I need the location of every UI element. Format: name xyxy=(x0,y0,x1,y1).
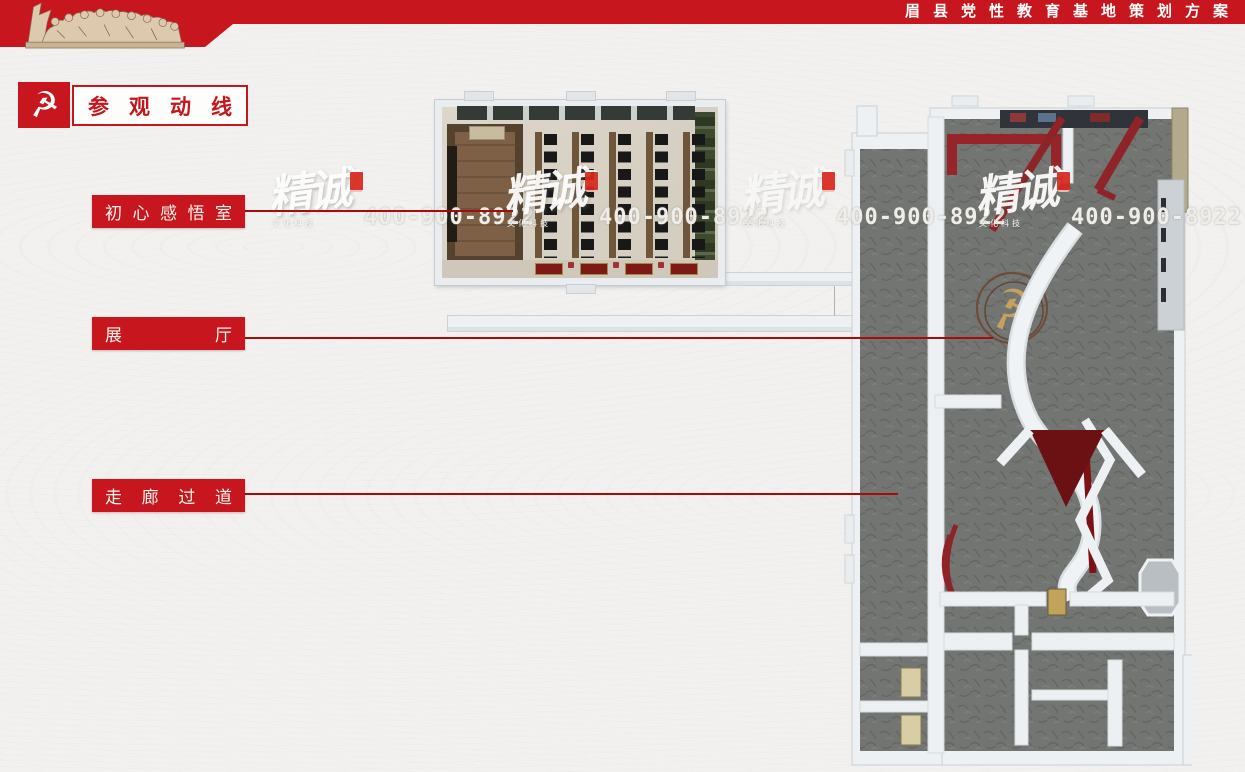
display-item xyxy=(1010,113,1026,122)
classroom-floorplan xyxy=(435,100,725,285)
wing-wall xyxy=(860,701,928,712)
section-title: 参观动线 xyxy=(74,91,246,121)
watermark-seal-icon xyxy=(350,170,363,192)
wall-art xyxy=(658,262,664,268)
wall-stub xyxy=(1015,605,1028,635)
room-wall xyxy=(940,592,1046,606)
projection-screen xyxy=(447,146,457,242)
chair-row xyxy=(692,134,705,258)
room-wall xyxy=(1070,592,1174,606)
gold-exhibit-piece xyxy=(1048,589,1066,615)
leadline-chuxin-room xyxy=(245,210,513,212)
red-carpet xyxy=(535,263,563,275)
pillar-stub xyxy=(667,92,695,100)
leadline-corridor xyxy=(245,493,898,495)
wall-art xyxy=(613,262,619,268)
door-panel xyxy=(901,668,921,697)
room-wall xyxy=(1015,650,1028,745)
exhibit-hall-drawing: ☭ xyxy=(842,93,1192,768)
desk xyxy=(683,132,690,258)
display-item xyxy=(1038,113,1056,122)
desk-column xyxy=(535,132,559,258)
header-title: 眉县党性教育基地策划方案 xyxy=(905,0,1241,24)
desk xyxy=(535,132,542,258)
chair-row xyxy=(618,134,631,258)
desk xyxy=(572,132,579,258)
display-tick xyxy=(1161,228,1166,242)
pillar-stub xyxy=(1068,96,1094,106)
callout-chuxin-room: 初心感悟室 xyxy=(92,195,245,228)
pillar-stub xyxy=(465,92,493,100)
pillar-stub xyxy=(567,92,595,100)
corner-block xyxy=(857,106,877,136)
right-outdent xyxy=(1183,655,1192,765)
wing-wall xyxy=(860,643,928,656)
desk-column xyxy=(646,132,670,258)
room-wall xyxy=(1032,690,1108,700)
callout-corridor: 走廊过道 xyxy=(92,479,245,512)
display-tick xyxy=(1161,258,1166,272)
desk-column xyxy=(609,132,633,258)
mid-wall-stub xyxy=(935,395,1001,408)
corridor-walkway xyxy=(447,315,875,332)
corridor-partition-wall xyxy=(928,117,944,753)
callout-label: 走廊过道 xyxy=(92,483,245,508)
watermark-seal-icon xyxy=(822,170,835,192)
hammer-sickle-icon: ☭ xyxy=(27,86,62,124)
octagon-screen-platform xyxy=(1140,560,1180,615)
red-carpet xyxy=(625,263,653,275)
pillar-stub xyxy=(845,555,854,583)
pillar-stub xyxy=(952,96,978,106)
podium xyxy=(469,126,505,140)
exhibit-hall-floorplan: ☭ xyxy=(842,93,1192,768)
callout-exhibit-hall: 展厅 xyxy=(92,317,245,350)
watermark-brand: 精诚 xyxy=(738,167,823,220)
room-wall xyxy=(1032,633,1174,650)
room-wall xyxy=(944,633,1012,650)
monument-sculpture-graphic xyxy=(16,1,196,50)
red-carpet xyxy=(580,263,608,275)
stage-wood-floor xyxy=(455,132,515,256)
watermark-subtitle: 文化科技 xyxy=(744,218,788,229)
callout-label: 展厅 xyxy=(92,321,245,346)
chair-row xyxy=(581,134,594,258)
room-wall xyxy=(1108,660,1122,746)
door-panel xyxy=(901,715,921,745)
display-tick xyxy=(1161,198,1166,212)
display-item xyxy=(1090,113,1110,122)
red-carpet xyxy=(670,263,698,275)
chair-row xyxy=(544,134,557,258)
corridor-join-line xyxy=(834,286,835,316)
window-wall xyxy=(457,106,695,120)
pillar-stub xyxy=(845,150,854,176)
party-emblem-badge: ☭ xyxy=(18,82,70,128)
slide-canvas: 眉县党性教育基地策划方案 ☭ 参观动线 初心感悟室 展厅 走廊过道 xyxy=(0,0,1245,772)
watermark-brand: 精诚 xyxy=(266,167,351,220)
desk xyxy=(646,132,653,258)
desk-column xyxy=(572,132,596,258)
section-title-box: 参观动线 xyxy=(72,85,248,126)
wall-art xyxy=(568,262,574,268)
pillar-stub xyxy=(845,515,854,543)
callout-label: 初心感悟室 xyxy=(92,199,245,224)
leadline-exhibit-hall xyxy=(245,337,993,339)
chair-row xyxy=(655,134,668,258)
watermark-subtitle: 文化科技 xyxy=(272,218,316,229)
desk xyxy=(609,132,616,258)
pillar-stub xyxy=(567,285,595,293)
display-tick xyxy=(1161,288,1166,302)
left-corridor-floor xyxy=(860,149,928,751)
desk-column xyxy=(683,132,707,258)
